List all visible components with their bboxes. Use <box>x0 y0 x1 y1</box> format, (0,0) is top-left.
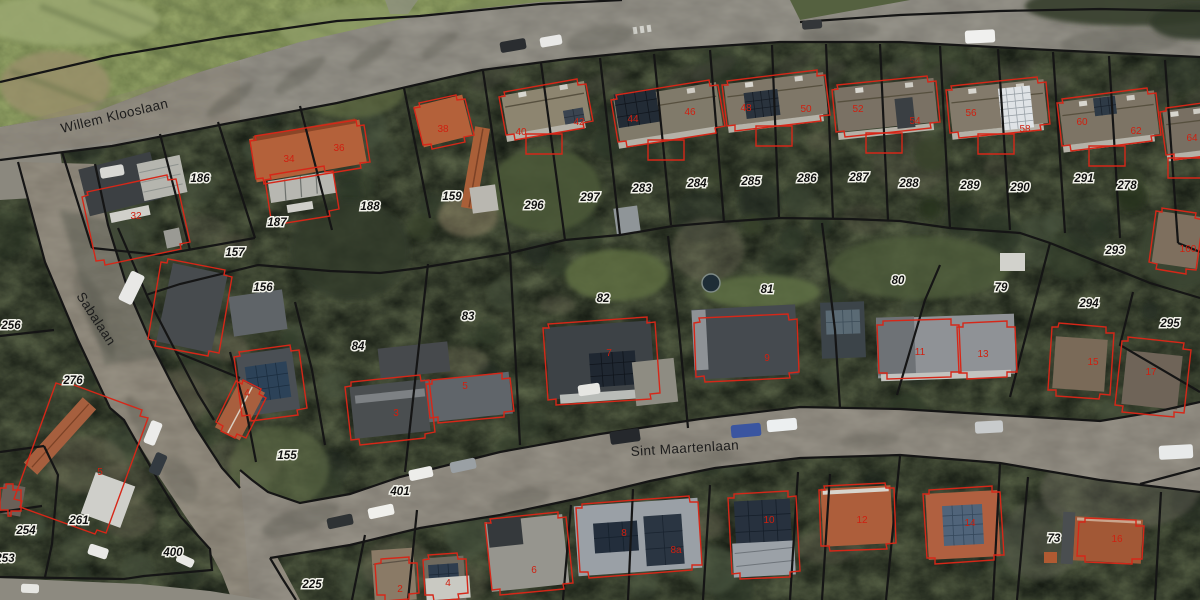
svg-text:297: 297 <box>579 192 600 204</box>
svg-text:3: 3 <box>393 408 399 419</box>
svg-text:58: 58 <box>1019 124 1031 135</box>
svg-text:64: 64 <box>1186 133 1198 144</box>
svg-text:290: 290 <box>1009 182 1030 194</box>
svg-text:52: 52 <box>852 104 864 115</box>
svg-text:284: 284 <box>686 178 707 190</box>
svg-text:401: 401 <box>389 486 409 498</box>
svg-text:9: 9 <box>764 353 770 364</box>
svg-text:60: 60 <box>1076 117 1088 128</box>
svg-text:2: 2 <box>397 584 403 595</box>
svg-text:187: 187 <box>267 217 287 229</box>
svg-text:11: 11 <box>915 347 926 358</box>
svg-text:10: 10 <box>763 515 775 526</box>
svg-text:81: 81 <box>761 284 774 296</box>
svg-text:276: 276 <box>62 375 83 387</box>
svg-text:40: 40 <box>515 127 527 138</box>
svg-text:225: 225 <box>301 579 322 591</box>
svg-text:8: 8 <box>621 528 627 539</box>
svg-text:12: 12 <box>856 515 868 526</box>
svg-text:4: 4 <box>244 388 250 399</box>
svg-text:295: 295 <box>1159 318 1180 330</box>
svg-text:5: 5 <box>97 467 103 478</box>
svg-text:294: 294 <box>1078 298 1099 310</box>
svg-text:155: 155 <box>277 450 297 462</box>
svg-text:8a: 8a <box>670 545 682 556</box>
svg-text:286: 286 <box>796 173 817 185</box>
svg-text:17: 17 <box>1145 367 1157 378</box>
svg-text:157: 157 <box>225 247 245 259</box>
svg-text:15: 15 <box>1087 357 1099 368</box>
svg-text:34: 34 <box>283 154 295 165</box>
svg-text:13: 13 <box>977 349 989 360</box>
svg-text:4: 4 <box>445 578 451 589</box>
svg-text:400: 400 <box>162 547 183 559</box>
svg-text:288: 288 <box>898 178 919 190</box>
svg-text:42: 42 <box>573 117 585 128</box>
svg-text:289: 289 <box>959 180 980 192</box>
svg-text:160: 160 <box>1180 244 1197 255</box>
svg-text:296: 296 <box>523 200 544 212</box>
svg-text:256: 256 <box>0 320 21 332</box>
svg-text:7: 7 <box>606 348 612 359</box>
svg-text:278: 278 <box>1116 180 1137 192</box>
svg-text:84: 84 <box>352 341 365 353</box>
svg-text:291: 291 <box>1073 173 1093 185</box>
svg-text:73: 73 <box>1048 533 1061 545</box>
svg-text:254: 254 <box>15 525 36 537</box>
svg-text:253: 253 <box>0 553 15 565</box>
svg-text:285: 285 <box>740 176 761 188</box>
svg-text:83: 83 <box>462 311 475 323</box>
svg-text:62: 62 <box>1130 126 1142 137</box>
svg-text:44: 44 <box>627 114 639 125</box>
svg-text:50: 50 <box>800 104 812 115</box>
svg-text:156: 156 <box>253 282 273 294</box>
svg-text:54: 54 <box>909 116 921 127</box>
svg-text:38: 38 <box>437 124 449 135</box>
svg-text:186: 186 <box>190 173 210 185</box>
svg-text:16: 16 <box>1111 534 1123 545</box>
svg-text:56: 56 <box>965 108 977 119</box>
svg-text:32: 32 <box>130 211 142 222</box>
svg-text:36: 36 <box>333 143 345 154</box>
svg-text:46: 46 <box>684 107 696 118</box>
svg-text:159: 159 <box>442 191 462 203</box>
svg-text:79: 79 <box>995 282 1008 294</box>
svg-text:293: 293 <box>1104 245 1125 257</box>
svg-text:287: 287 <box>848 172 869 184</box>
svg-text:80: 80 <box>892 275 905 287</box>
svg-text:14: 14 <box>964 518 976 529</box>
svg-text:188: 188 <box>360 201 380 213</box>
svg-text:48: 48 <box>740 103 752 114</box>
svg-text:5: 5 <box>462 381 468 392</box>
svg-text:82: 82 <box>597 293 610 305</box>
svg-text:6: 6 <box>531 565 537 576</box>
svg-text:283: 283 <box>631 183 652 195</box>
svg-text:261: 261 <box>68 515 88 527</box>
